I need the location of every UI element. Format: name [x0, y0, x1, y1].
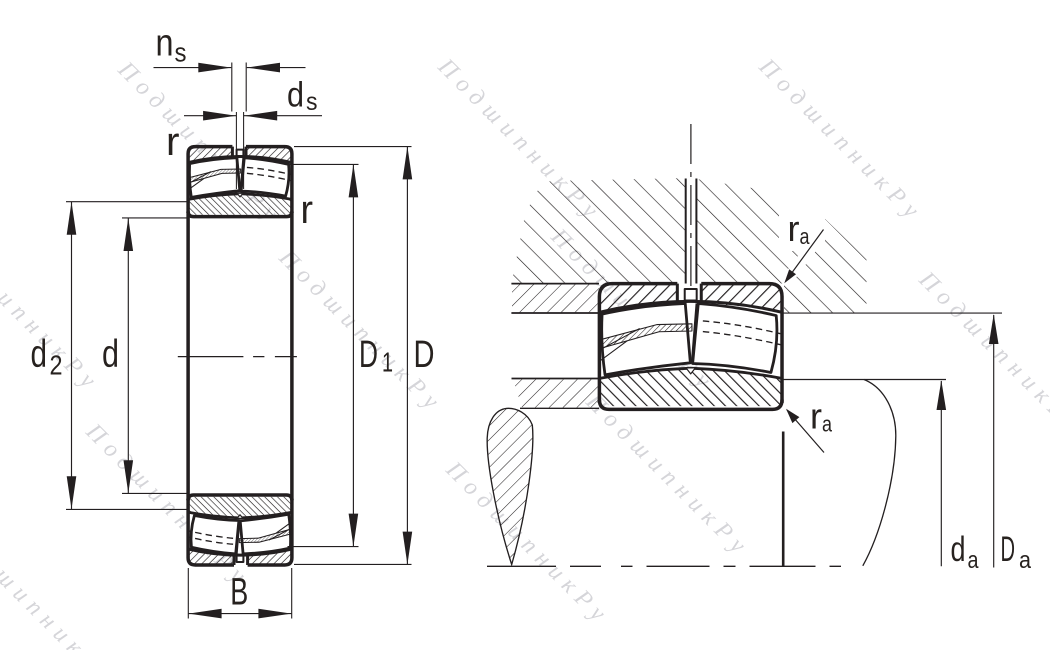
svg-text:a: a	[968, 547, 980, 574]
svg-text:D: D	[1001, 530, 1016, 569]
svg-text:r: r	[810, 396, 822, 437]
svg-text:D: D	[359, 334, 378, 376]
svg-text:a: a	[1019, 547, 1032, 574]
svg-text:ПодшипникРу: ПодшипникРу	[753, 53, 928, 228]
svg-text:d: d	[31, 333, 48, 376]
svg-text:ПодшипникРу: ПодшипникРу	[580, 388, 755, 563]
svg-text:D: D	[414, 334, 435, 376]
svg-text:s: s	[175, 38, 187, 68]
svg-text:r: r	[788, 208, 800, 249]
svg-text:a: a	[822, 412, 833, 437]
svg-text:r: r	[166, 120, 180, 164]
svg-text:d: d	[102, 333, 119, 376]
svg-text:d: d	[951, 530, 966, 569]
svg-text:B: B	[230, 572, 248, 614]
svg-text:n: n	[156, 23, 174, 65]
svg-text:d: d	[287, 75, 304, 114]
svg-text:ПодшипникРу: ПодшипникРу	[913, 266, 1050, 441]
svg-text:a: a	[800, 224, 811, 249]
svg-text:ПодшипникРу: ПодшипникРу	[0, 518, 120, 650]
svg-text:s: s	[306, 88, 318, 116]
svg-text:ПодшипникРу: ПодшипникРу	[273, 244, 448, 419]
svg-text:1: 1	[382, 347, 393, 378]
svg-text:2: 2	[50, 350, 63, 381]
svg-text:r: r	[301, 188, 314, 232]
